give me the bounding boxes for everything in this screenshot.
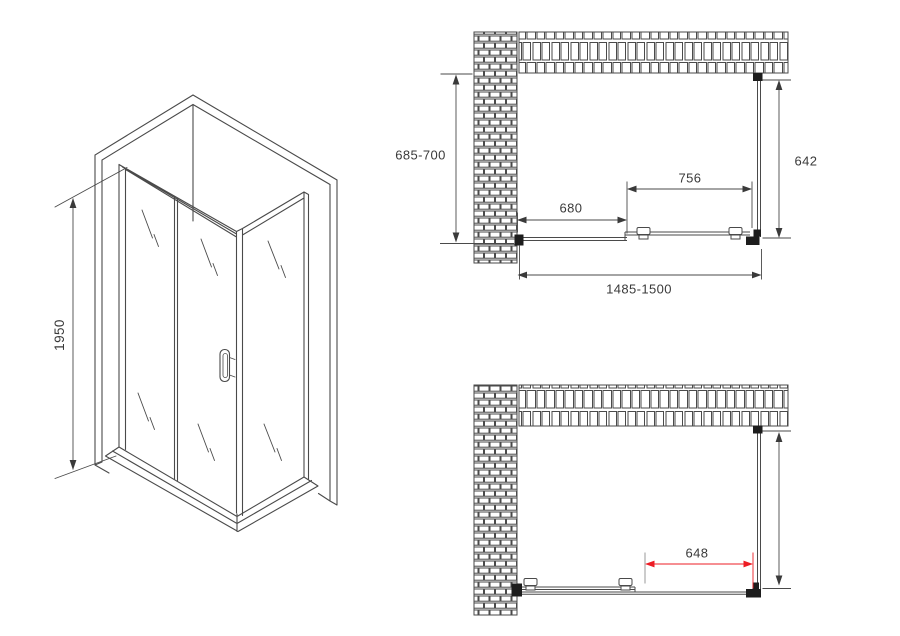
dimension-side-panel: 642 (763, 80, 818, 238)
wall-profile-connector (515, 235, 524, 246)
dimension-door: 756 (627, 171, 752, 234)
side-panel (758, 434, 761, 590)
wall-brick-column (474, 385, 517, 615)
wall-brick-column (474, 32, 517, 263)
overall-width-dimension-label: 1485-1500 (606, 282, 672, 297)
arrowhead-down (776, 576, 783, 586)
depth-dimension-label: 685-700 (395, 148, 446, 163)
arrowhead-down (70, 460, 77, 470)
side-panel (758, 81, 761, 237)
dimension-1950: 1950 (52, 168, 127, 479)
arrowhead-left (627, 186, 637, 193)
arrowhead-up (453, 75, 460, 85)
arrowhead-up (70, 198, 77, 208)
door-roller (637, 228, 650, 240)
door-handle (220, 350, 235, 382)
extension-lines (763, 431, 792, 589)
arrowhead-left (517, 217, 527, 224)
fixed-panel-dimension-label: 680 (560, 201, 583, 216)
dimension-fixed-panel: 680 (517, 201, 627, 233)
dimension-door-opening: 648 (645, 546, 753, 589)
wall-edges (95, 95, 337, 505)
dimension-overall-width: 1485-1500 (518, 245, 762, 297)
arrowhead-right (618, 217, 628, 224)
arrowhead-left (518, 272, 528, 279)
isometric-view: 1950 (52, 95, 337, 532)
arrowhead-down (776, 228, 783, 238)
shower-tray (106, 447, 319, 532)
arrowhead-up (776, 432, 783, 442)
glass-marks (138, 210, 286, 461)
door-roller (619, 579, 632, 591)
top-plan-view: 685-700 680 756 642 1485 (395, 32, 817, 297)
arrowhead-up (776, 80, 783, 90)
side-panel-dimension-label: 642 (795, 154, 818, 169)
shower-enclosure-technical-drawing: 1950 685-700 (0, 0, 900, 636)
wall-profile-connector (512, 584, 523, 597)
arrowhead-left (645, 561, 655, 568)
wall-brick-band (519, 385, 788, 426)
dimension-side-panel-unlabeled (763, 431, 792, 589)
bottom-plan-view: 648 (474, 385, 791, 615)
door-opening-dimension-label: 648 (686, 546, 709, 561)
drawing-canvas: 1950 685-700 (0, 0, 900, 636)
wall-connector (753, 426, 763, 434)
enclosure-frame (119, 165, 309, 516)
wall-connector (753, 73, 763, 81)
arrowhead-right (752, 272, 762, 279)
door-roller (524, 579, 537, 591)
door-track (517, 592, 761, 594)
fixed-panel (517, 238, 627, 241)
door-roller (729, 228, 742, 240)
arrowhead-right (743, 186, 753, 193)
corner-connector (746, 583, 761, 598)
arrowhead-down (453, 233, 460, 243)
extension-lines (520, 245, 762, 280)
extension-lines (763, 80, 792, 238)
wall-brick-band (519, 32, 788, 73)
height-dimension-label: 1950 (52, 319, 67, 351)
arrowhead-right (744, 561, 754, 568)
door-dimension-label: 756 (679, 171, 702, 186)
